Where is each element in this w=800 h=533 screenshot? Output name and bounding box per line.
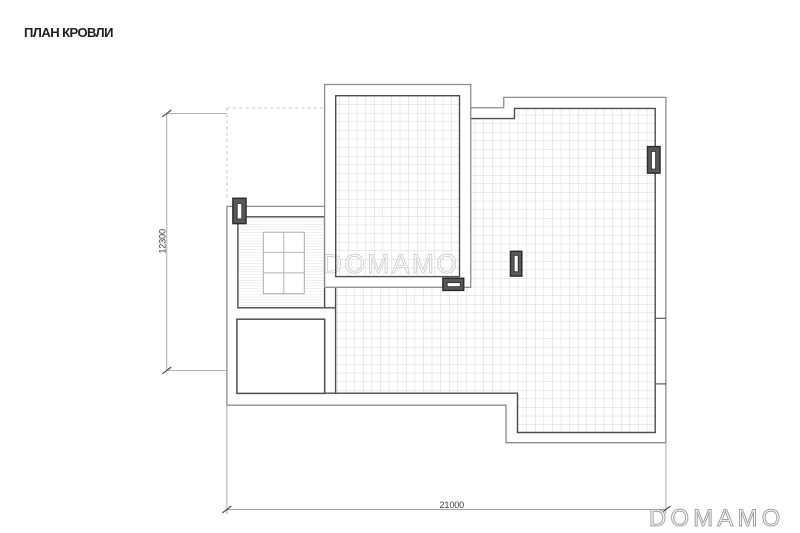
svg-text:DOMAMO: DOMAMO — [649, 505, 785, 532]
svg-text:ПЛАН КРОВЛИ: ПЛАН КРОВЛИ — [24, 25, 113, 40]
svg-text:12300: 12300 — [157, 229, 167, 254]
svg-text:DOMAMO: DOMAMO — [323, 249, 460, 279]
svg-text:21000: 21000 — [440, 500, 465, 510]
